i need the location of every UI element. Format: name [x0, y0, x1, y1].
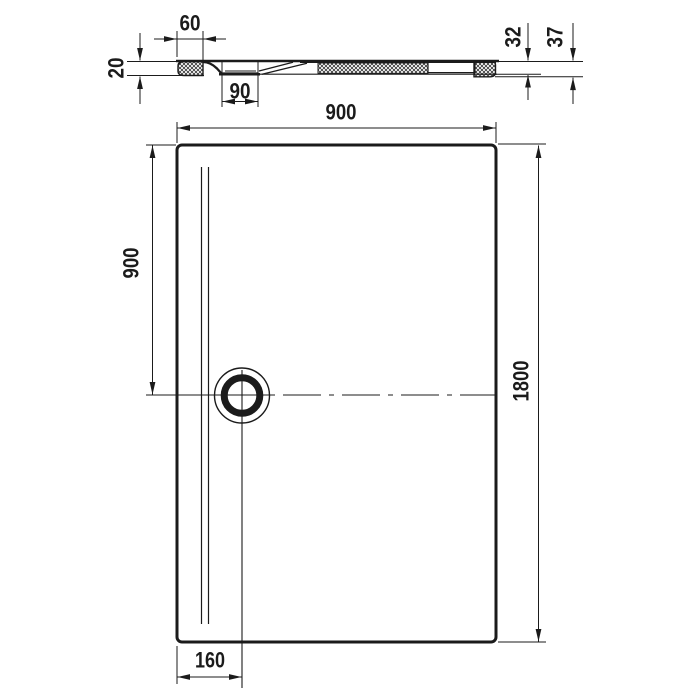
dim-drain-from-left: 160 [177, 646, 242, 684]
drain-recess-rise-1 [259, 62, 293, 71]
shower-tray-technical-drawing: 60 20 90 32 37 [0, 0, 700, 700]
support-strip-hatched [318, 63, 428, 73]
dim-drain-recess-width: 90 [222, 62, 258, 107]
dim-rim-width: 60 [154, 11, 226, 61]
dim-label-160: 160 [195, 648, 225, 673]
dim-label-32: 32 [501, 27, 526, 48]
dim-tray-width: 900 [177, 100, 496, 144]
dim-height-overall: 37 [543, 23, 574, 104]
left-rim-block [178, 62, 203, 76]
dim-label-1800: 1800 [509, 361, 534, 402]
dim-label-60: 60 [180, 11, 201, 36]
section-top-thick-band [300, 60, 496, 63]
dim-label-20: 20 [104, 58, 129, 79]
dim-rim-thickness: 20 [104, 33, 141, 104]
dim-label-900-left: 900 [119, 248, 144, 279]
dim-label-900-top: 900 [326, 100, 357, 125]
dim-drain-from-top: 900 [119, 145, 177, 395]
drain-recess-profile [203, 62, 258, 74]
section-view: 60 20 90 32 37 [104, 11, 584, 108]
dim-tray-length: 1800 [498, 144, 546, 642]
drawing-canvas: 60 20 90 32 37 [0, 0, 700, 700]
right-rim-block [474, 61, 496, 77]
dim-label-90: 90 [230, 79, 251, 104]
dim-label-37: 37 [543, 27, 568, 48]
plan-view: 900 900 1800 160 [119, 100, 547, 689]
